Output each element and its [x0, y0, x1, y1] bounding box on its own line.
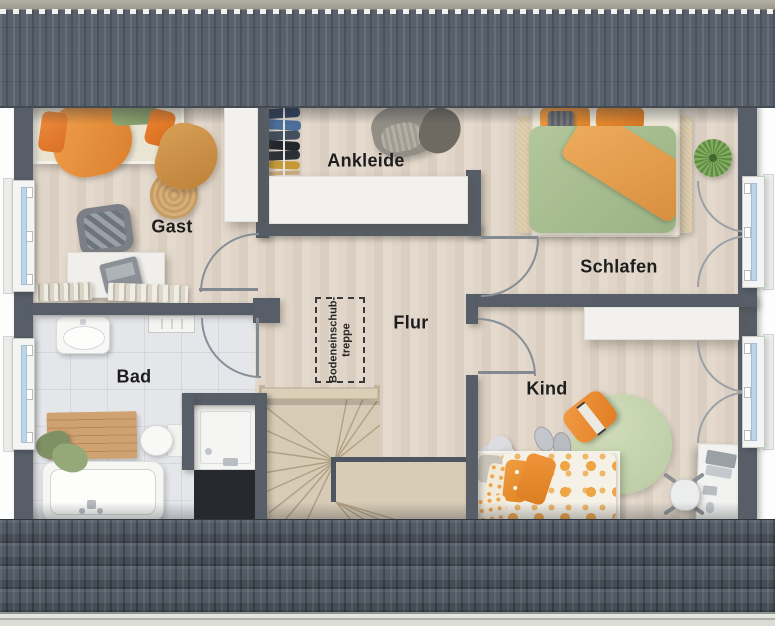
gast-window-handle-3 — [26, 274, 33, 285]
bad-shower-tray — [194, 405, 257, 470]
wall-ankleide-south — [256, 222, 481, 236]
ankleide-wardrobe — [269, 176, 468, 224]
bad-shower-faucet — [223, 458, 238, 466]
kind-window-handle-1 — [744, 343, 751, 354]
schlafen-window-handle-1 — [744, 183, 751, 194]
kind-window-handle-2 — [744, 387, 751, 398]
bad-window-handle-3 — [26, 432, 33, 443]
kind-door-leaf — [478, 371, 535, 374]
attic-hatch-line1: Bodeneinschub- — [327, 297, 340, 383]
staircase — [259, 385, 469, 520]
attic-hatch-box: Bodeneinschub- treppe — [315, 297, 365, 383]
gast-wardrobe — [224, 107, 258, 222]
bad-sink-faucet — [80, 319, 86, 325]
bad-radiator — [148, 315, 195, 333]
bad-toilet — [140, 423, 182, 456]
wall-flur-kind-lower — [466, 375, 478, 520]
bottom-roof-shadow — [14, 502, 757, 519]
top-roof-shadow — [14, 108, 757, 124]
gast-window-handle-2 — [26, 231, 33, 242]
floor-plan: Bodeneinschub- treppe — [0, 0, 775, 626]
roof-bottom-tiles — [0, 519, 775, 612]
bad-door-leaf — [256, 318, 259, 377]
kind-window-glass — [751, 343, 757, 441]
gast-door-leaf — [199, 288, 258, 291]
gast-laptop-screen — [105, 262, 135, 281]
bad-shower-inner — [200, 411, 251, 464]
wall-schlafen-kind — [478, 294, 757, 307]
kind-window-handle-3 — [744, 430, 751, 441]
bad-radiator-fins — [153, 319, 190, 329]
schlafen-window — [742, 176, 765, 288]
room-label-ankleide: Ankleide — [327, 151, 404, 172]
wall-exterior-right — [738, 97, 757, 520]
gast-window — [12, 180, 35, 292]
kind-window — [742, 336, 765, 448]
wall-post-ankleide-right — [466, 170, 481, 236]
gast-armchair-cushion — [83, 209, 128, 250]
bad-sink — [56, 316, 110, 354]
schlafen-plant-center — [709, 154, 717, 162]
bad-window-handle-1 — [26, 345, 33, 356]
bad-window — [12, 338, 35, 450]
bad-sink-basin — [63, 326, 105, 350]
gast-window-handle-1 — [26, 187, 33, 198]
roof-top-tile-caps — [0, 9, 775, 14]
wall-gast-bad — [33, 303, 263, 315]
kind-wardrobe — [584, 307, 739, 340]
gast-books-right — [108, 283, 189, 304]
gast-armchair — [75, 202, 135, 257]
bad-toilet-bowl — [140, 425, 173, 456]
room-label-flur: Flur — [393, 313, 428, 334]
wall-shower-left — [182, 393, 194, 470]
room-label-kind: Kind — [526, 379, 567, 400]
roof-bottom — [0, 519, 775, 626]
room-label-schlafen: Schlafen — [580, 257, 657, 278]
wall-bad-flur — [255, 393, 267, 520]
schlafen-window-handle-3 — [744, 270, 751, 281]
roof-bottom-eave-board — [0, 612, 775, 626]
schlafen-plant — [694, 139, 732, 177]
schlafen-orange-throw — [560, 126, 676, 224]
schlafen-duvet — [529, 126, 676, 233]
room-label-gast: Gast — [151, 217, 192, 238]
room-label-bad: Bad — [117, 367, 152, 388]
schlafen-window-handle-2 — [744, 227, 751, 238]
kind-pillow-button-1 — [515, 470, 519, 474]
kind-beanbag-strap — [576, 401, 606, 436]
schlafen-window-glass — [751, 183, 757, 281]
attic-hatch-label: Bodeneinschub- treppe — [327, 297, 352, 383]
gast-books-left — [34, 282, 93, 302]
roof-top — [0, 0, 775, 108]
schlafen-door-leaf — [481, 236, 538, 239]
attic-hatch-line2: treppe — [340, 297, 353, 383]
bad-shower-drain — [205, 448, 212, 455]
wall-exterior-left — [14, 97, 33, 520]
bad-window-handle-2 — [26, 389, 33, 400]
wall-flur-kind-upper — [466, 294, 478, 324]
kind-laptop — [703, 450, 737, 481]
